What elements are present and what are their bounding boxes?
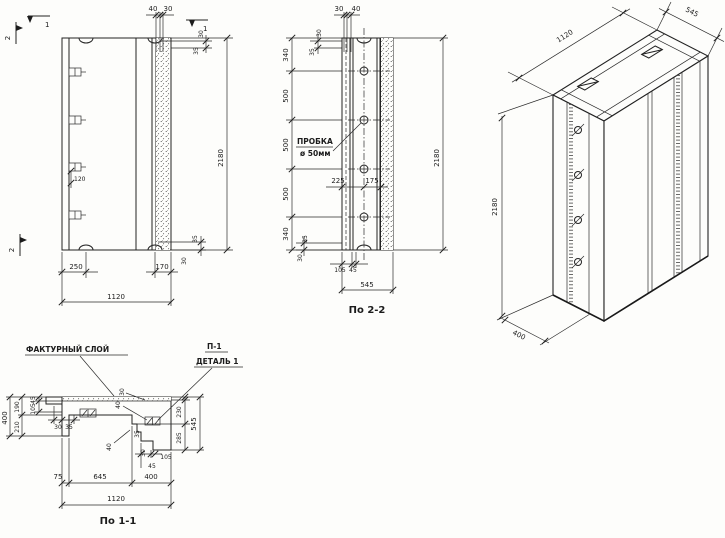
section11-step-35-left: 35 — [65, 424, 73, 431]
section22-dim-500a: 500 — [282, 89, 290, 102]
panel-drawing: 120 40 30 1 1 2 2 30 35 2180 35 30 — [0, 0, 725, 538]
section-mark-2-bottom: 2 — [8, 234, 27, 256]
plug-callout-line1: ПРОБКА — [297, 137, 333, 146]
section11-step-30-left: 30 — [54, 424, 62, 431]
elevation-stud-dim-label: 120 — [74, 176, 86, 183]
section-mark-2-top: 2 — [4, 22, 23, 44]
elevation-right-top-35: 35 — [193, 47, 200, 55]
iso-height-dim — [497, 95, 553, 320]
elevation-right-bottom-30: 30 — [181, 257, 188, 265]
elevation-dim-170: 170 — [155, 263, 168, 271]
section11-dim-75: 75 — [54, 473, 63, 481]
iso-depth-label: 545 — [684, 6, 700, 19]
elevation-right-top-30: 30 — [198, 30, 205, 38]
section22-top-40: 40 — [352, 5, 361, 13]
section11-right-230: 230 — [176, 406, 183, 418]
section11-width-label: 1120 — [107, 495, 125, 503]
section11-slab-40: 40 — [115, 401, 122, 409]
section22-caption: По 2-2 — [349, 305, 386, 316]
section-mark-2-top-label: 2 — [4, 36, 12, 40]
section22-topleft-30: 30 — [316, 29, 323, 37]
elevation-top-dim-40: 40 — [149, 5, 158, 13]
section11-joint-tab — [46, 397, 62, 404]
section22-height-dim — [393, 35, 448, 253]
elevation-embed-studs — [69, 68, 86, 219]
section11-facture-hatch — [62, 397, 171, 401]
elevation-rib-hatch — [156, 38, 170, 250]
section11-embed-1 — [80, 409, 96, 417]
section11-left-210: 210 — [14, 421, 21, 433]
section11-right-285: 285 — [176, 432, 183, 444]
section22-bottomleft-35: 35 — [302, 235, 309, 243]
section11-left-105: 105 — [30, 403, 37, 415]
section11-step-105: 105 — [160, 454, 172, 461]
section-2-2-view: 340 500 500 500 340 30 40 30 35 ПРОБКА ø… — [282, 5, 448, 316]
elevation-width-label: 1120 — [107, 293, 125, 301]
elevation-height-dim — [171, 35, 233, 253]
section11-dim-400: 400 — [144, 473, 157, 481]
section22-rib-hatch — [381, 38, 393, 250]
section22-dim-45: 45 — [349, 267, 357, 274]
detail-callout-name: ДЕТАЛЬ 1 — [196, 357, 239, 366]
section22-bottomleft-30: 30 — [297, 254, 304, 262]
section11-left-45: 45 — [30, 396, 37, 404]
section-mark-2-bottom-label: 2 — [8, 248, 16, 252]
section22-dim-175: 175 — [365, 177, 378, 185]
section11-step-30: 30 — [140, 449, 147, 457]
elevation-right-bottom-35: 35 — [192, 235, 199, 243]
iso-width-label: 1120 — [555, 28, 574, 44]
section-1-1-view: ФАКТУРНЫЙ СЛОЙ П-1 ДЕТАЛЬ 1 400 190 210 … — [1, 342, 243, 527]
section22-top-dims — [334, 12, 360, 52]
isometric-view: 1120 545 2180 400 — [491, 2, 724, 345]
section11-step-35: 35 — [134, 430, 141, 438]
facture-callout: ФАКТУРНЫЙ СЛОЙ — [25, 345, 128, 396]
iso-height-label: 2180 — [491, 198, 499, 216]
iso-end-face — [553, 95, 604, 321]
section11-caption: По 1-1 — [100, 516, 137, 527]
section11-step-40: 40 — [106, 443, 113, 451]
section22-width-label: 545 — [360, 281, 373, 289]
section11-dim-645: 645 — [93, 473, 106, 481]
section22-dim-105: 105 — [334, 267, 346, 274]
section22-topleft-35: 35 — [309, 48, 316, 56]
plug-callout: ПРОБКА ø 50мм — [296, 123, 361, 158]
section11-slab-30: 30 — [119, 388, 126, 396]
section11-left-total: 400 — [1, 411, 9, 424]
section11-left-190: 190 — [14, 401, 21, 413]
drawing-sheet: 120 40 30 1 1 2 2 30 35 2180 35 30 — [0, 0, 725, 538]
section11-step-45: 45 — [148, 463, 156, 470]
plug-callout-line2: ø 50мм — [300, 149, 330, 158]
elevation-top-dim-30: 30 — [164, 5, 173, 13]
elevation-lifting-notches — [79, 38, 162, 250]
section22-dim-225: 225 — [331, 177, 344, 185]
section22-height-label: 2180 — [433, 149, 441, 167]
section-mark-1-top: 1 — [27, 16, 50, 29]
section-mark-1-top-label: 1 — [45, 21, 49, 29]
section11-right-total: 545 — [190, 417, 198, 430]
section22-dim-500c: 500 — [282, 187, 290, 200]
elevation-view: 120 40 30 1 1 2 2 30 35 2180 35 30 — [4, 5, 233, 306]
section22-dim-340a: 340 — [282, 48, 290, 61]
section22-dim-500b: 500 — [282, 138, 290, 151]
section22-top-30: 30 — [335, 5, 344, 13]
section22-dim-340b: 340 — [282, 227, 290, 240]
facture-callout-label: ФАКТУРНЫЙ СЛОЙ — [26, 345, 109, 354]
iso-base-label: 400 — [511, 329, 527, 342]
elevation-height-label: 2180 — [217, 149, 225, 167]
elevation-dim-250: 250 — [69, 263, 82, 271]
detail-callout-p1: П-1 — [207, 342, 222, 351]
